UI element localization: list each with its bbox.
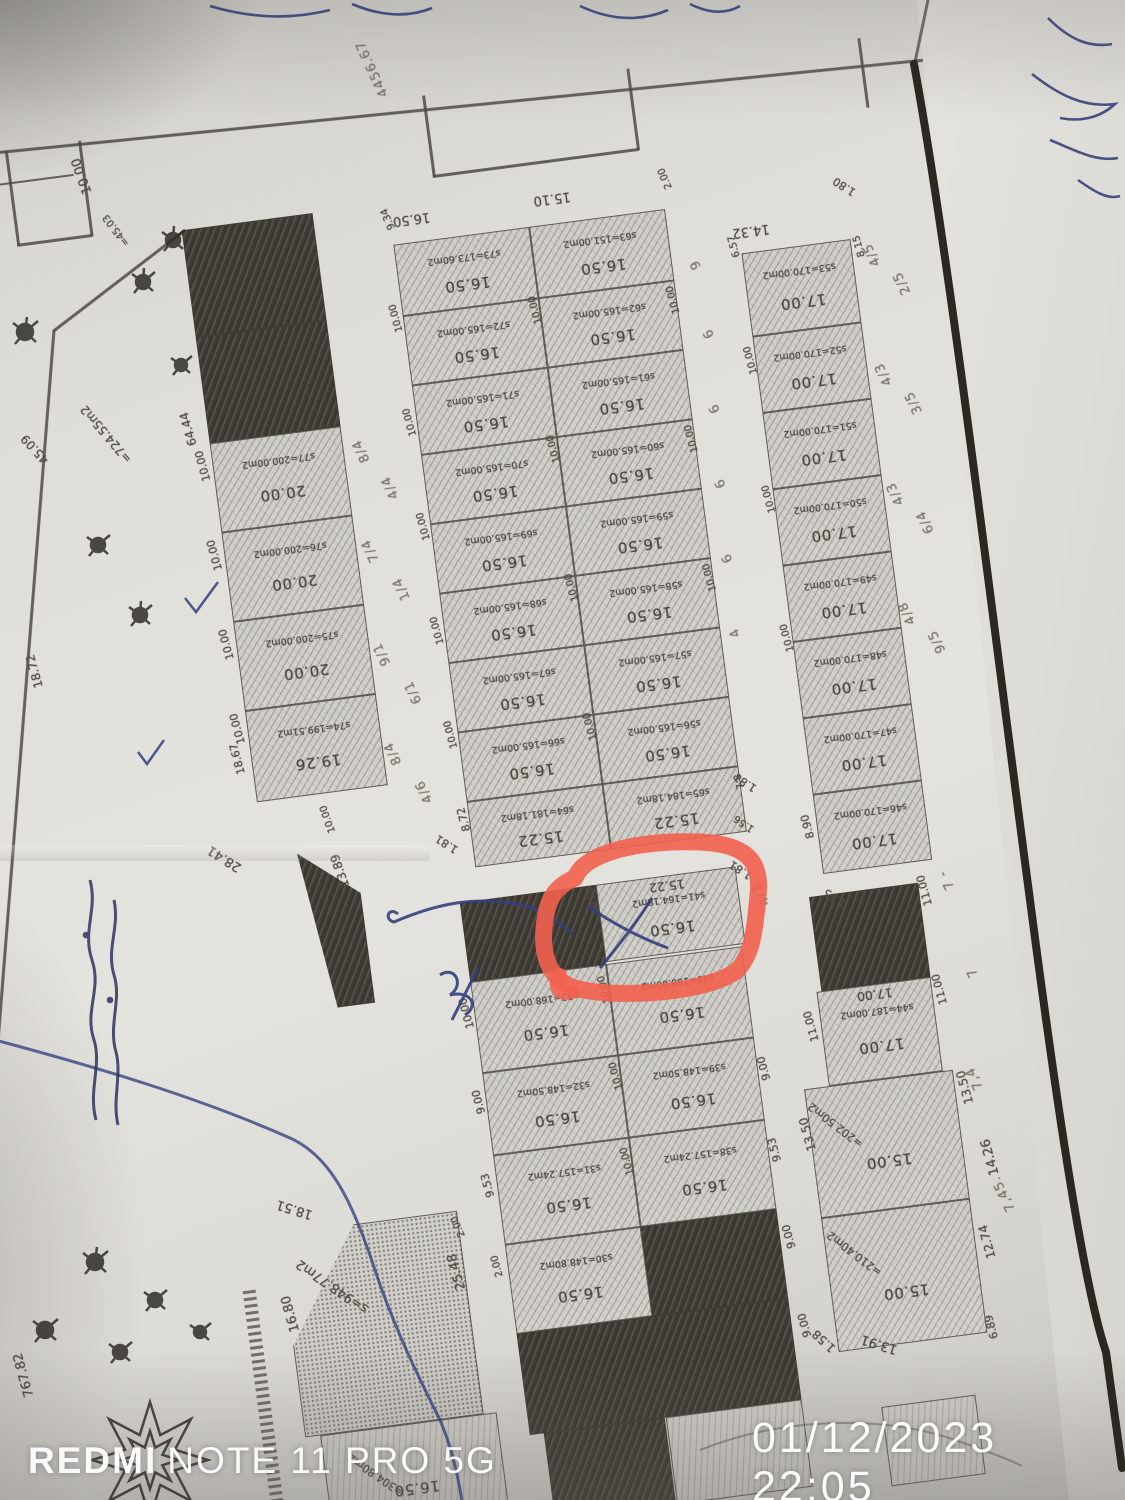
ink-overlay (0, 0, 1125, 1500)
handwriting-top-right (210, 4, 1120, 197)
page-border-line (914, 64, 1122, 1468)
photo-of-cadastral-plan: s77=200.00m220.00s76=200.00m220.00s75=20… (0, 0, 1125, 1500)
handwriting-side-note (84, 880, 118, 1125)
timestamp-watermark: 01/12/2023 22:05 (752, 1414, 1125, 1500)
page-border-top (915, 0, 928, 62)
device-watermark-rest: NOTE 11 PRO 5G (167, 1440, 497, 1481)
red-marker-circle (544, 842, 759, 994)
tree-symbols (13, 226, 211, 1363)
pen-checkmarks (138, 582, 218, 764)
pen-river-line (0, 1040, 462, 1500)
device-watermark: REDMINOTE 11 PRO 5G (28, 1440, 497, 1482)
device-watermark-bold: REDMI (28, 1440, 157, 1481)
